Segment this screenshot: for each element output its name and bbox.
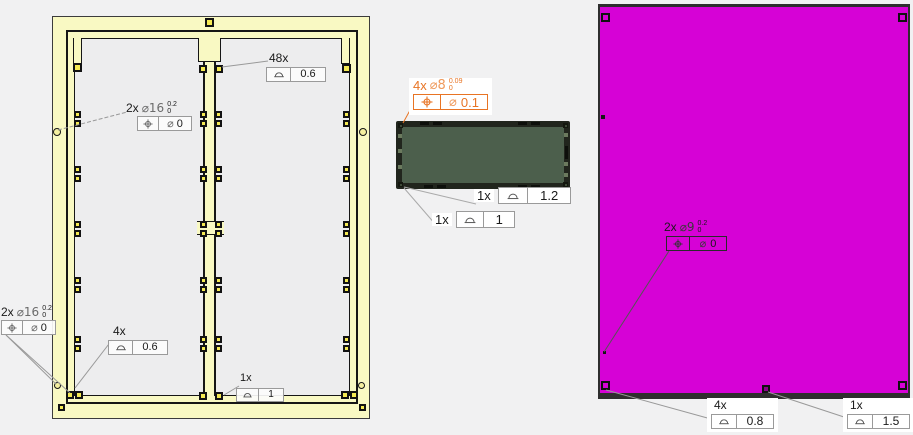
tolerance-value: ⌀ 0 bbox=[158, 117, 191, 130]
tolerance-value: 1 bbox=[258, 389, 283, 401]
tolerance-value: 1.2 bbox=[527, 188, 570, 203]
instance-count: 4x bbox=[711, 399, 774, 412]
annotation-frame-4x[interactable]: 4x 0.6 bbox=[108, 325, 168, 356]
tolerance-value: 0.8 bbox=[736, 415, 773, 428]
instance-count: 2x bbox=[1, 306, 14, 319]
instance-count: 1x bbox=[474, 189, 494, 202]
instance-count: 2x bbox=[664, 221, 677, 234]
annotation-panel-1x-a[interactable]: 1x 1.2 bbox=[474, 186, 571, 205]
annotation-panel-1x-b[interactable]: 1x 1 bbox=[432, 210, 515, 229]
diameter-dimension: ⌀16 bbox=[142, 102, 165, 115]
annotation-frame-48x[interactable]: 48x 0.6 bbox=[266, 52, 326, 83]
tolerance-value: ⌀ 0 bbox=[689, 237, 726, 250]
annotation-frame-2x16-corner[interactable]: 2x ⌀16 0.2 0 ⌀ 0 bbox=[1, 306, 56, 338]
tolerance-value: 0.6 bbox=[290, 68, 325, 81]
position-icon bbox=[667, 237, 689, 250]
profile-of-surface-icon bbox=[712, 415, 736, 428]
tolerance-value: ⌀ 0.1 bbox=[440, 95, 487, 109]
tolerance-stack: 0.2 0 bbox=[698, 220, 708, 234]
instance-count: 48x bbox=[266, 52, 326, 65]
instance-count: 1x bbox=[847, 399, 910, 412]
profile-of-surface-icon bbox=[267, 68, 290, 81]
instance-count: 1x bbox=[432, 213, 452, 226]
instance-count: 4x bbox=[413, 79, 427, 92]
tolerance-stack: 0.2 0 bbox=[42, 305, 52, 319]
diameter-dimension: ⌀16 bbox=[17, 306, 40, 319]
position-icon bbox=[414, 95, 440, 109]
position-icon bbox=[138, 117, 158, 130]
profile-of-surface-icon bbox=[499, 188, 527, 203]
annotation-frame-2x16[interactable]: 2x ⌀16 0.2 0 ⌀ 0 bbox=[126, 102, 192, 134]
annotation-panel-4x8[interactable]: 4x ⌀8 0.09 0 ⌀ 0.1 bbox=[409, 78, 492, 115]
tolerance-value: 1.5 bbox=[872, 415, 909, 428]
annotation-frame-1x[interactable]: 1x 1 bbox=[236, 372, 284, 403]
profile-of-surface-icon bbox=[237, 389, 258, 401]
annotation-plate-1x[interactable]: 1x 1.5 bbox=[843, 398, 913, 432]
diameter-dimension: ⌀8 bbox=[430, 79, 446, 92]
cad-viewport: 48x 0.6 2x ⌀16 0.2 0 ⌀ 0 bbox=[0, 0, 913, 435]
instance-count: 1x bbox=[236, 372, 284, 385]
instance-count: 4x bbox=[108, 325, 168, 338]
tolerance-stack: 0.2 0 bbox=[167, 101, 177, 115]
tolerance-value: ⌀ 0 bbox=[22, 321, 55, 334]
tolerance-value: 1 bbox=[483, 212, 514, 227]
position-icon bbox=[2, 321, 22, 334]
tolerance-stack: 0.09 0 bbox=[449, 78, 463, 92]
profile-of-surface-icon bbox=[848, 415, 872, 428]
profile-of-surface-icon bbox=[109, 341, 132, 354]
annotation-plate-4x[interactable]: 4x 0.8 bbox=[707, 398, 778, 432]
annotation-plate-2x9[interactable]: 2x ⌀9 0.2 0 ⌀ 0 bbox=[664, 221, 727, 254]
tolerance-value: 0.6 bbox=[132, 341, 167, 354]
profile-of-surface-icon bbox=[457, 212, 483, 227]
diameter-dimension: ⌀9 bbox=[680, 221, 695, 234]
instance-count: 2x bbox=[126, 102, 139, 115]
